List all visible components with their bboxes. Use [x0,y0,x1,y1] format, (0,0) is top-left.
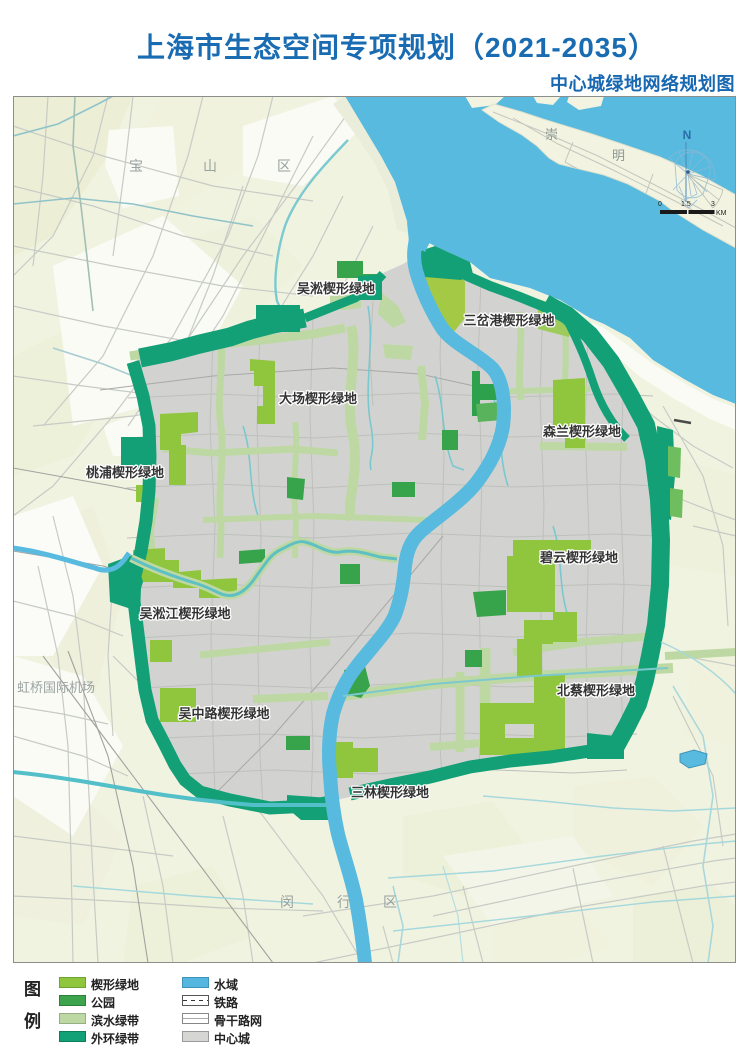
svg-text:北蔡楔形绿地: 北蔡楔形绿地 [557,683,635,698]
svg-text:大场楔形绿地: 大场楔形绿地 [279,391,357,406]
svg-text:明: 明 [612,148,625,163]
svg-text:宝: 宝 [129,158,143,174]
svg-text:1.5: 1.5 [681,201,691,208]
svg-text:森兰楔形绿地: 森兰楔形绿地 [543,424,621,439]
svg-text:崇: 崇 [545,127,558,142]
svg-text:N: N [683,128,692,142]
svg-text:区: 区 [277,158,291,174]
svg-text:桃浦楔形绿地: 桃浦楔形绿地 [86,465,164,480]
svg-text:0: 0 [658,201,662,208]
svg-text:3: 3 [711,201,715,208]
svg-text:区: 区 [383,894,397,910]
svg-text:虹桥国际机场: 虹桥国际机场 [17,680,95,695]
svg-text:三林楔形绿地: 三林楔形绿地 [351,785,429,800]
svg-text:KM: KM [716,210,727,217]
svg-text:山: 山 [203,158,217,174]
svg-text:碧云楔形绿地: 碧云楔形绿地 [539,550,618,565]
svg-text:吴中路楔形绿地: 吴中路楔形绿地 [178,706,269,721]
svg-text:吴淞江楔形绿地: 吴淞江楔形绿地 [139,606,230,621]
svg-text:闵: 闵 [280,894,294,910]
svg-text:三岔港楔形绿地: 三岔港楔形绿地 [463,313,554,328]
svg-text:吴淞楔形绿地: 吴淞楔形绿地 [297,281,375,296]
svg-text:行: 行 [337,894,351,910]
